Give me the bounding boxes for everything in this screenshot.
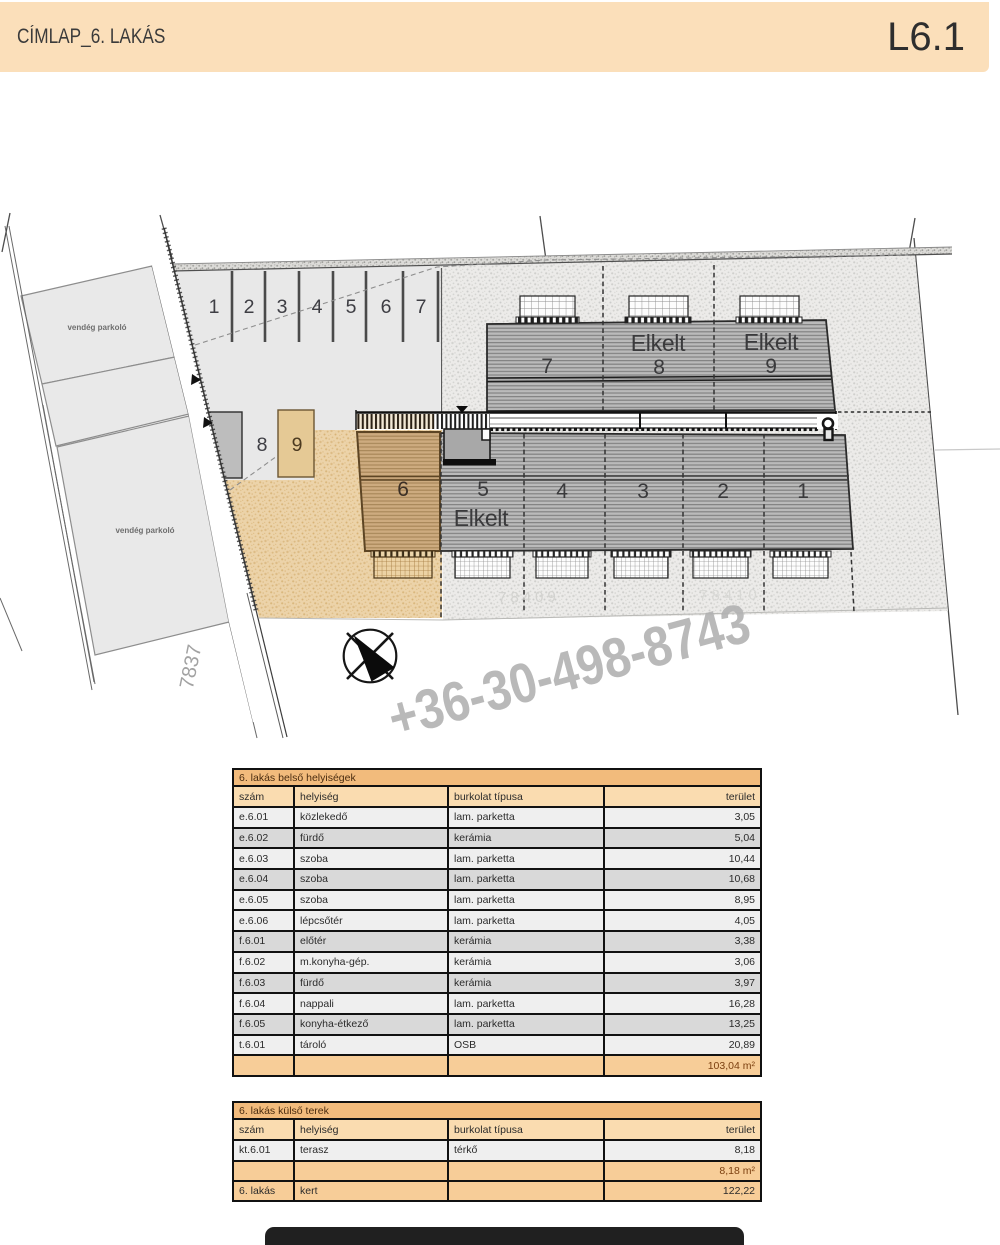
svg-text:6: 6	[381, 296, 392, 318]
svg-text:7837: 7837	[176, 643, 206, 691]
svg-text:4: 4	[312, 296, 323, 318]
svg-text:78409: 78409	[498, 588, 560, 606]
svg-text:Elkelt: Elkelt	[454, 505, 509, 531]
svg-text:1: 1	[209, 296, 220, 318]
svg-text:7: 7	[416, 296, 427, 318]
svg-text:6: 6	[397, 478, 408, 501]
svg-text:Elkelt: Elkelt	[631, 330, 686, 356]
svg-text:2: 2	[244, 296, 255, 318]
svg-text:9: 9	[765, 355, 776, 378]
svg-text:8: 8	[257, 434, 268, 456]
svg-text:3: 3	[277, 296, 288, 318]
svg-text:4: 4	[556, 480, 568, 503]
svg-text:vendég parkoló: vendég parkoló	[67, 323, 126, 332]
svg-text:5: 5	[477, 478, 488, 501]
svg-text:Elkelt: Elkelt	[744, 329, 799, 355]
svg-text:9: 9	[292, 434, 303, 456]
svg-text:2: 2	[717, 480, 728, 503]
svg-text:1: 1	[797, 480, 808, 503]
svg-text:3: 3	[637, 480, 648, 503]
svg-text:vendég parkoló: vendég parkoló	[115, 526, 174, 535]
svg-text:7: 7	[541, 355, 552, 378]
svg-text:5: 5	[346, 296, 357, 318]
svg-text:8: 8	[653, 356, 664, 379]
